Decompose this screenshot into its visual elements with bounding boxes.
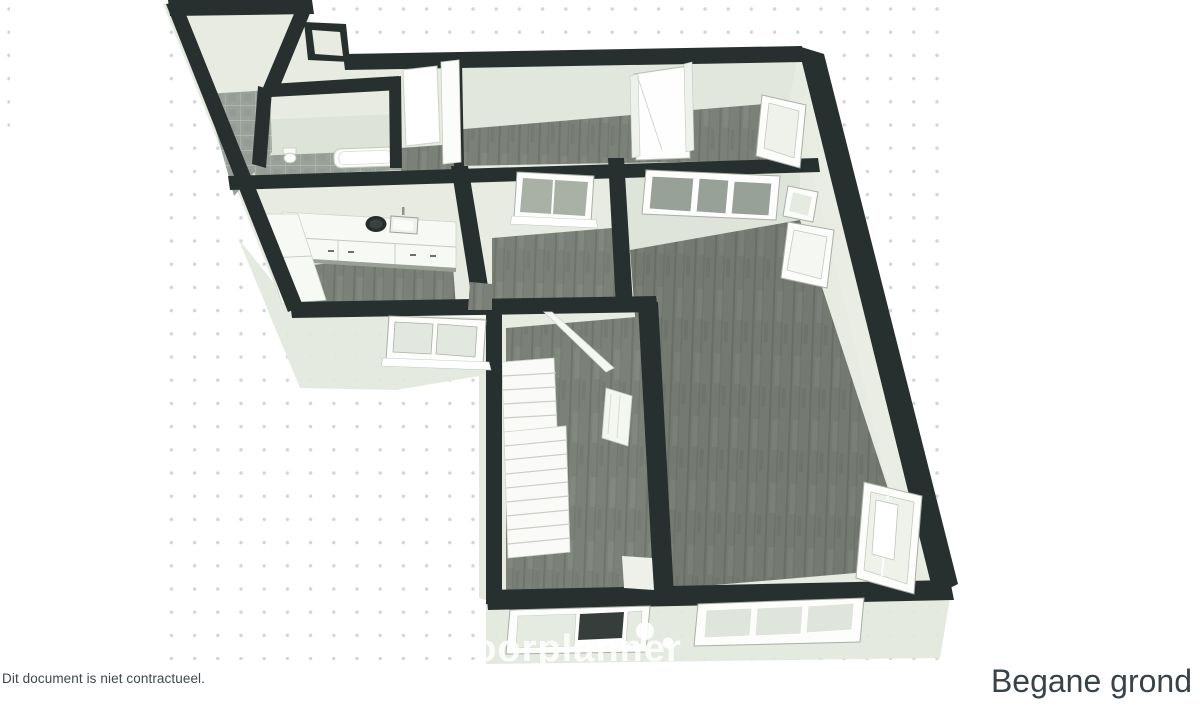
floorplan-3d-render bbox=[0, 0, 1200, 706]
door-top-hallway bbox=[630, 62, 694, 160]
floor-label: Begane grond bbox=[991, 663, 1192, 700]
bump-interior bbox=[312, 30, 343, 56]
window-front-right bbox=[694, 598, 864, 646]
bathtub bbox=[334, 147, 397, 168]
window-front-left bbox=[506, 606, 650, 654]
window-hall bbox=[510, 172, 598, 228]
faucet bbox=[402, 207, 405, 215]
cabinet-handle bbox=[430, 255, 436, 257]
watermark-dot bbox=[663, 638, 674, 649]
passage-floor bbox=[468, 282, 492, 310]
disclaimer-text: Dit document is niet contractueel. bbox=[2, 671, 205, 686]
window-east-bottom bbox=[856, 482, 922, 594]
floorplan-viewer: floorplanner Dit document is niet contra… bbox=[0, 0, 1200, 706]
radiator bbox=[602, 388, 632, 446]
toilet bbox=[283, 148, 296, 163]
window-east-top bbox=[756, 95, 806, 168]
window-band-bigroom bbox=[642, 170, 780, 220]
wall-room1-north bbox=[168, 0, 314, 16]
cabinet-handle bbox=[328, 250, 334, 252]
window-east-small bbox=[783, 186, 818, 222]
dot-grid-edge bbox=[0, 0, 10, 132]
sink-basin bbox=[393, 219, 414, 231]
wall-bathroom-east bbox=[389, 76, 402, 168]
window-east-mid bbox=[781, 222, 834, 288]
cabinet-handle bbox=[410, 254, 416, 256]
cabinet-handle bbox=[348, 251, 354, 253]
window-kitchen-south bbox=[381, 316, 491, 370]
stairwell-bottom-panel bbox=[622, 556, 654, 590]
wall-stairwell-west bbox=[486, 310, 502, 604]
cooktop-burner bbox=[370, 219, 383, 228]
watermark-dot bbox=[636, 622, 654, 640]
